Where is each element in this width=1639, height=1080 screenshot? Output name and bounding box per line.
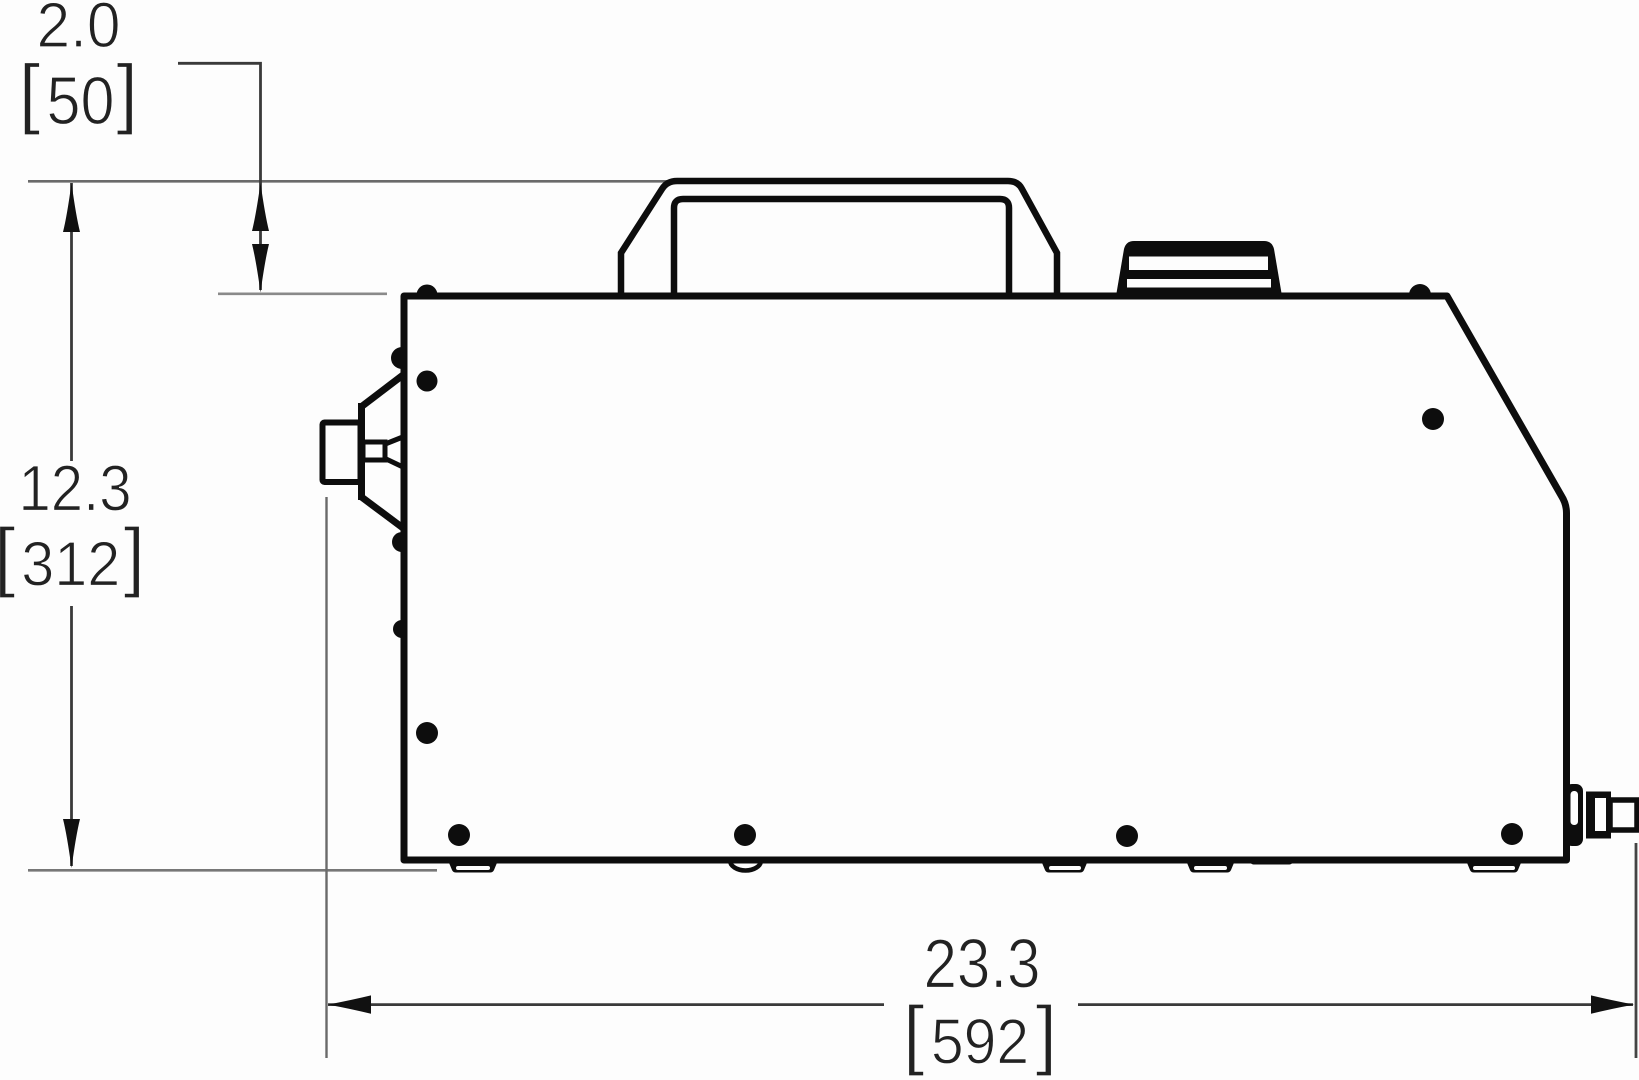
svg-text:]: ] — [124, 513, 145, 599]
svg-text:12.3: 12.3 — [19, 452, 132, 525]
svg-text:592: 592 — [931, 1006, 1029, 1078]
svg-text:]: ] — [116, 48, 138, 136]
svg-text:[: [ — [0, 513, 15, 599]
svg-text:23.3: 23.3 — [924, 925, 1041, 1003]
svg-text:2.0: 2.0 — [37, 0, 121, 61]
svg-text:[: [ — [19, 48, 41, 136]
svg-text:[: [ — [903, 991, 924, 1077]
svg-text:]: ] — [1036, 991, 1057, 1077]
svg-text:50: 50 — [47, 63, 115, 139]
svg-text:312: 312 — [21, 530, 120, 600]
